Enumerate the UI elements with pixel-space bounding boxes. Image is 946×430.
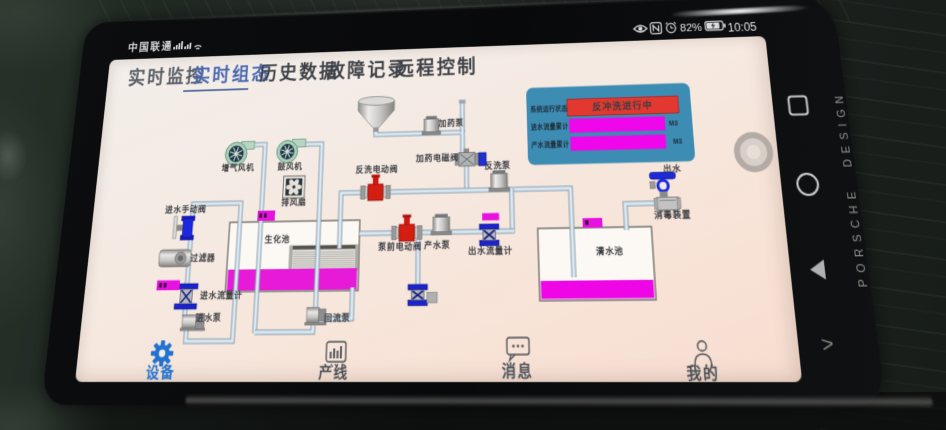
svg-text:产水泵: 产水泵 <box>424 240 451 252</box>
svg-text:生化池: 生化池 <box>264 233 290 244</box>
svg-text:排风扇: 排风扇 <box>281 197 307 208</box>
svg-text:反冲洗进行中: 反冲洗进行中 <box>592 99 653 112</box>
svg-text:清水池: 清水池 <box>596 245 624 257</box>
svg-text:泵前电动阀: 泵前电动阀 <box>377 241 422 253</box>
svg-text:出水流量计: 出水流量计 <box>468 245 513 257</box>
svg-text:消毒装置: 消毒装置 <box>654 209 692 221</box>
svg-text:反洗电动阀: 反洗电动阀 <box>356 163 399 175</box>
svg-text:出水: 出水 <box>663 163 682 174</box>
svg-text:反洗泵: 反洗泵 <box>485 160 512 171</box>
svg-text:M3: M3 <box>669 121 679 128</box>
svg-text:进水流量计: 进水流量计 <box>200 289 244 301</box>
svg-text:加药泵: 加药泵 <box>437 117 464 128</box>
svg-text:M3: M3 <box>673 139 683 146</box>
svg-text:鼓风机: 鼓风机 <box>277 161 303 172</box>
svg-text:回流泵: 回流泵 <box>324 312 351 324</box>
svg-text:过滤器: 过滤器 <box>190 253 216 264</box>
svg-text:增气风机: 增气风机 <box>221 162 255 173</box>
svg-text:加药电磁阀: 加药电磁阀 <box>415 153 459 165</box>
svg-text:进水手动阀: 进水手动阀 <box>165 204 207 215</box>
svg-text:进水泵: 进水泵 <box>195 312 222 324</box>
